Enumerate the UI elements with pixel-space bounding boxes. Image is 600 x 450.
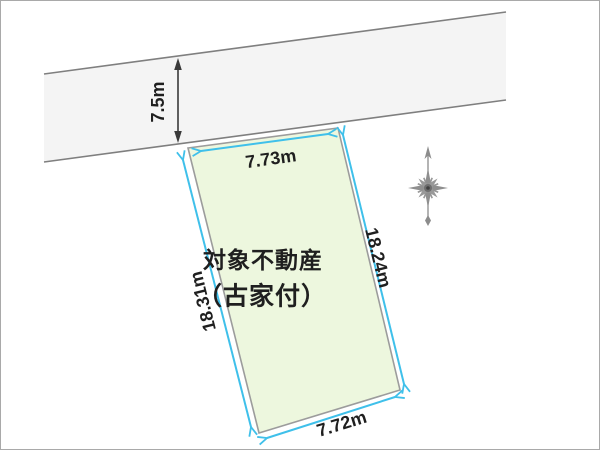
compass-north-icon: [408, 146, 448, 226]
road-width-label: 7.5m: [148, 81, 168, 122]
property-caption-line1: 対象不動産: [203, 247, 323, 273]
plot-shape: [188, 128, 400, 433]
property-caption-line2: （古家付）: [197, 282, 327, 311]
diagram-canvas: 7.5m 7.73m 18.31m 18.24m 7.72m 対象不動産 （古家…: [1, 1, 600, 450]
plot-survey-diagram: 7.5m 7.73m 18.31m 18.24m 7.72m 対象不動産 （古家…: [0, 0, 600, 450]
